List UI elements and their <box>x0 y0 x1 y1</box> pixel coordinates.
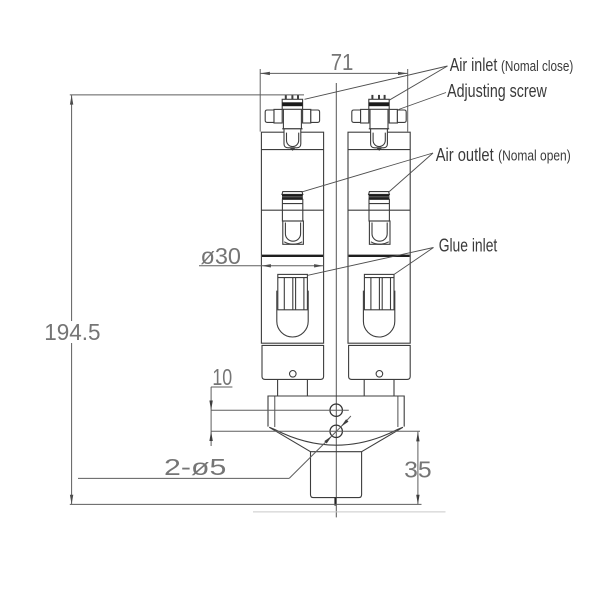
svg-text:(Nomal close): (Nomal close) <box>501 58 573 75</box>
svg-text:Glue inlet: Glue inlet <box>439 236 498 256</box>
svg-text:71: 71 <box>331 49 354 75</box>
svg-text:ø30: ø30 <box>201 243 242 269</box>
svg-text:194.5: 194.5 <box>44 319 100 345</box>
svg-text:(Nomal open): (Nomal open) <box>498 148 571 165</box>
svg-text:Air outlet: Air outlet <box>436 145 494 165</box>
svg-text:Air inlet: Air inlet <box>450 55 498 75</box>
svg-text:2-ø5: 2-ø5 <box>164 454 226 480</box>
svg-text:35: 35 <box>404 457 432 483</box>
svg-text:Adjusting screw: Adjusting screw <box>447 81 547 101</box>
svg-text:10: 10 <box>212 364 232 390</box>
